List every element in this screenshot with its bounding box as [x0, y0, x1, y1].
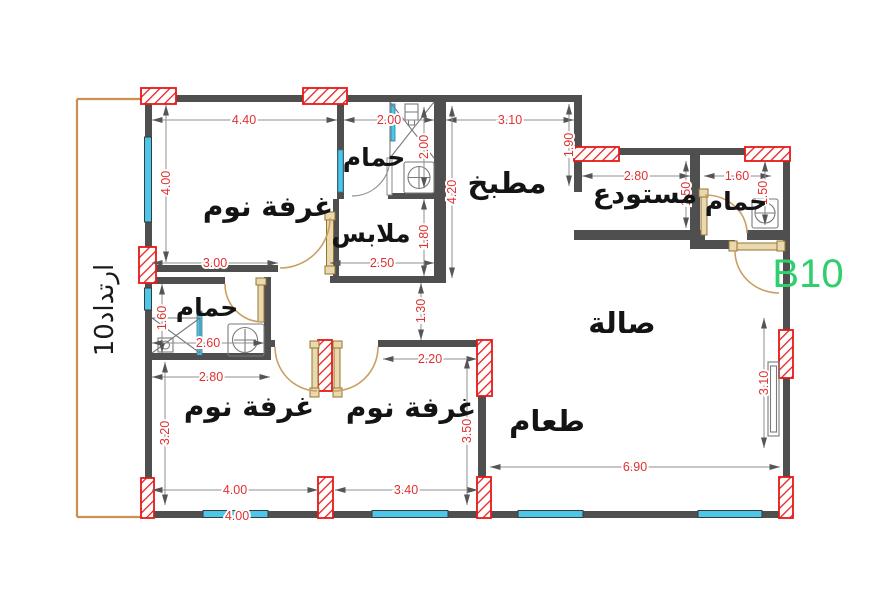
wall-entrance	[690, 240, 735, 249]
washbasin-left-icon	[158, 338, 173, 352]
dim-label: 4.20	[445, 180, 459, 204]
dim-label: 4.00	[225, 509, 249, 523]
window-bottom-2	[372, 511, 448, 518]
room-label-kitchen: مطبخ	[468, 166, 547, 200]
dim-label: 3.40	[394, 483, 418, 497]
door-post	[729, 241, 737, 251]
dim-label: 1.60	[725, 169, 749, 183]
dim-label: 1.80	[417, 225, 431, 249]
door-post	[333, 341, 342, 348]
room-label-closet: ملابس	[331, 219, 410, 248]
dim-label: 4.00	[223, 483, 247, 497]
window-bottom-3	[518, 511, 583, 518]
dim-label: 2.80	[199, 370, 223, 384]
column-top-mid	[303, 88, 347, 104]
wall-outer-top	[145, 95, 582, 102]
floor-plan-canvas: 4.40 2.00 3.10 4.00 2.00 4.20 1.90 2.80 …	[0, 0, 890, 591]
door-leaf-bathroom-left	[258, 284, 264, 322]
dim-label: 3.00	[203, 256, 227, 270]
unit-number-label: B10	[772, 252, 843, 296]
room-label-hall: صالة	[588, 306, 655, 340]
door-leaf-bedroom2	[312, 347, 318, 391]
column-top-left	[141, 88, 176, 104]
column-top-right	[745, 147, 790, 161]
room-label-bedroom1: غرفة نوم	[203, 190, 333, 223]
window-left-1	[145, 137, 152, 222]
room-label-bathroom-top: حمام	[343, 143, 406, 172]
dimension-lines	[152, 104, 780, 505]
door-post	[777, 241, 785, 251]
wall-bedroom3-top	[378, 340, 478, 347]
column-bedroom3	[477, 340, 492, 396]
column-center	[318, 340, 332, 391]
column-bottom-1	[318, 477, 333, 518]
window-left-2	[145, 288, 152, 310]
dim-label: 4.00	[159, 171, 173, 195]
room-label-bedroom3: غرفة نوم	[346, 391, 476, 424]
dim-label: 3.10	[498, 113, 522, 127]
wall-bathroom-right-bottom	[747, 230, 783, 240]
wall-bathroom-top-bottom	[388, 193, 434, 199]
door-arc-bedroom3	[334, 347, 378, 391]
room-label-bathroom-right: حمام	[705, 187, 768, 216]
room-label-storage: مستودع	[593, 179, 697, 210]
wall-storage-bottom	[574, 230, 705, 240]
door-post	[310, 341, 319, 348]
dim-label: 1.90	[562, 133, 576, 157]
dim-label: 3.10	[757, 371, 771, 395]
room-label-bedroom2: غرفة نوم	[184, 390, 314, 423]
room-label-bathroom-left: حمام	[176, 293, 239, 322]
column-left-mid	[139, 247, 156, 283]
wall-closet-bottom	[330, 276, 446, 283]
dim-label: 4.40	[232, 113, 256, 127]
column-bottom-right	[779, 477, 793, 518]
door-post	[256, 278, 266, 285]
dim-label: 2.00	[377, 113, 401, 127]
wall-bathroom-left-top	[145, 277, 225, 284]
column-right-wall	[779, 330, 793, 378]
dim-label: 2.00	[417, 135, 431, 159]
dim-label: 3.20	[158, 421, 172, 445]
dim-label: 1.30	[414, 299, 428, 323]
dim-label: 2.50	[370, 256, 394, 270]
dim-label: 2.20	[418, 352, 442, 366]
door-arc-bedroom2	[275, 347, 317, 391]
wall-bedroom2-stub	[264, 340, 275, 347]
room-label-dining: طعام	[509, 404, 585, 438]
setback-label: ارتداد10	[90, 264, 120, 357]
dim-label: 6.90	[623, 460, 647, 474]
door-leaf-entrance	[733, 243, 779, 250]
door-post	[333, 388, 342, 397]
dim-label: 2.60	[196, 336, 220, 350]
toilet-left-cross-icon	[234, 329, 256, 352]
column-bottom-left	[141, 478, 154, 518]
wall-bathroom-left-right	[264, 277, 271, 360]
shaft-right-inner-icon	[771, 366, 777, 432]
door-leaf-bedroom3	[334, 347, 340, 391]
door-arc-bedroom1	[280, 218, 330, 268]
dim-label: 1.60	[155, 306, 169, 330]
column-bottom-2	[477, 477, 491, 518]
floor-plan-drawing: 4.40 2.00 3.10 4.00 2.00 4.20 1.90 2.80 …	[0, 0, 890, 591]
window-bottom-4	[698, 511, 762, 518]
column-storage-left	[574, 147, 619, 161]
door-post	[325, 266, 335, 274]
